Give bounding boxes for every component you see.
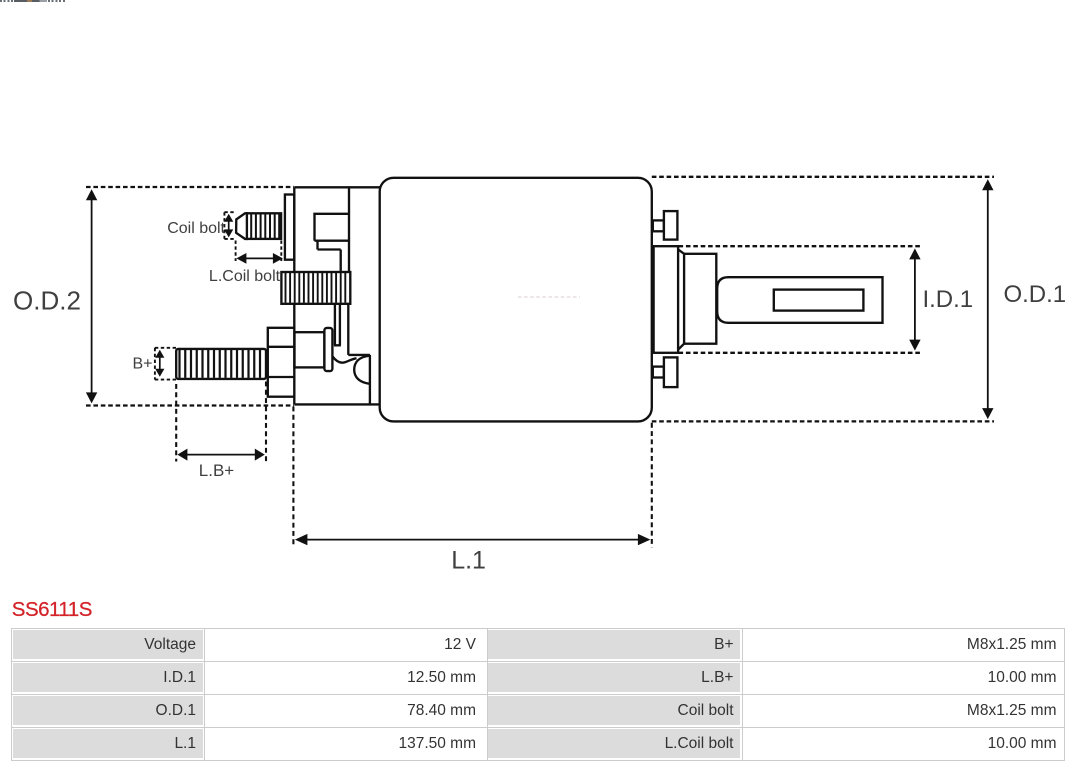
svg-text:Coil bolt: Coil bolt [167,220,225,237]
svg-text:L.B+: L.B+ [199,461,235,480]
svg-text:B+: B+ [132,355,152,372]
svg-text:L.1: L.1 [451,546,486,574]
svg-text:O.D.2: O.D.2 [13,286,81,316]
svg-text:O.D.1: O.D.1 [1003,281,1066,308]
svg-text:I.D.1: I.D.1 [922,286,973,313]
svg-text:L.Coil bolt: L.Coil bolt [209,268,281,285]
